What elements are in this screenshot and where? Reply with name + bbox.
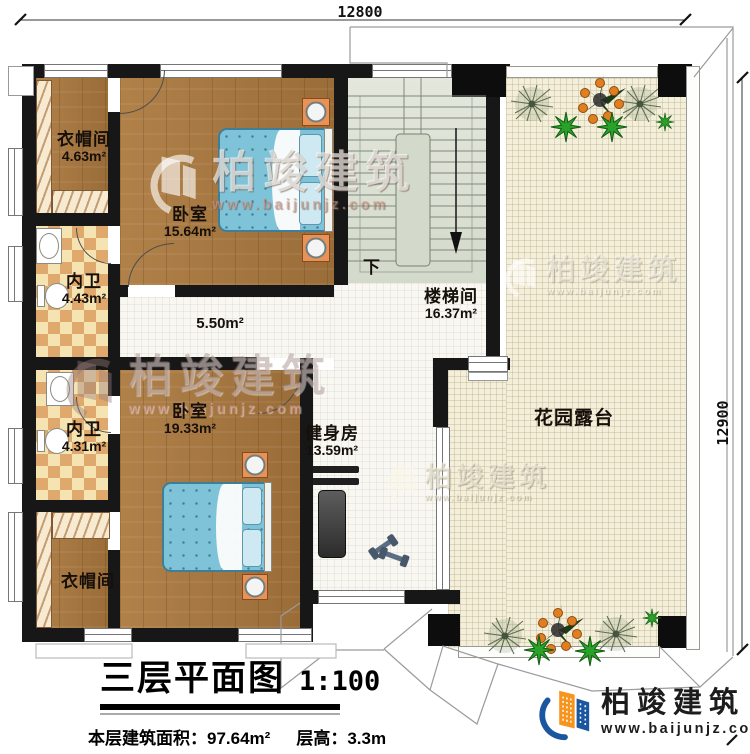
floor-height-label: 层高： (296, 729, 347, 748)
room-label-gym: 健身房 13.59m² (305, 424, 359, 459)
wardrobe-cloakroom-top-side (36, 80, 52, 214)
terrace-parapet-right (686, 66, 700, 650)
wall (300, 358, 313, 628)
window (8, 512, 23, 602)
wall (334, 64, 348, 285)
bed-headboard-bottom (264, 482, 272, 572)
lamp-icon (306, 238, 327, 259)
terrace-parapet-bottom (458, 646, 660, 658)
bed-sheet-top (272, 130, 300, 230)
toilet-tank (37, 430, 45, 452)
room-label-cloakroom-top: 衣帽间 4.63m² (57, 130, 111, 165)
pillow (242, 529, 262, 567)
room-label-bedroom-bottom: 卧室 19.33m² (164, 402, 216, 437)
plan-info: 本层建筑面积：97.64m² 层高：3.3m (88, 724, 386, 749)
wardrobe-cloakroom-bottom-shelf (52, 512, 110, 539)
wall (433, 370, 448, 427)
room-label-bathroom-top: 内卫 4.43m² (62, 272, 106, 307)
room-name: 卧室 (172, 402, 208, 421)
room-area: 19.33m² (164, 421, 216, 437)
weight-bench-seat (318, 490, 346, 558)
pillow (299, 182, 322, 225)
toilet-tank (37, 285, 45, 307)
company-logo-url: www.baijunjz.com (601, 721, 750, 737)
room-area: 15.64m² (164, 224, 216, 240)
window (8, 428, 23, 484)
floor-height-value: 3.3m (347, 729, 386, 748)
title-underline (100, 704, 340, 710)
stair-direction: 下 (363, 258, 381, 277)
room-area: 4.43m² (62, 291, 106, 307)
company-logo: 柏竣建筑 www.baijunjz.com (536, 684, 750, 742)
floor-terrace-lower (448, 370, 506, 648)
column (428, 614, 460, 646)
window (372, 64, 452, 78)
plan-title: 三层平面图 (100, 650, 285, 701)
room-name: 衣帽间 (57, 130, 111, 149)
room-area: 13.59m² (306, 443, 358, 459)
nightstand (242, 574, 268, 600)
bed-sheet-bottom (216, 484, 242, 570)
room-label-garden-terrace: 花园露台 (534, 408, 614, 429)
wall (22, 64, 36, 642)
wall (108, 434, 120, 500)
window (8, 148, 23, 216)
room-label-bathroom-bottom: 内卫 4.31m² (62, 420, 106, 455)
room-label-hallway: 5.50m² (196, 316, 244, 333)
nightstand (242, 452, 268, 478)
terrace-door-opening (468, 356, 508, 372)
floor-area-value: 97.64m² (207, 729, 270, 748)
window (160, 64, 282, 78)
room-name: 内卫 (66, 420, 102, 439)
wall (108, 264, 120, 357)
room-label-cloakroom-bottom: 衣帽间 (61, 572, 115, 591)
wall (120, 285, 128, 297)
room-area: 4.31m² (62, 439, 106, 455)
wall (22, 500, 120, 512)
floor-height: 层高：3.3m (296, 724, 386, 749)
wall (486, 64, 500, 358)
title-block: 三层平面图 1:100 本层建筑面积：97.64m² 层高：3.3m (100, 650, 386, 749)
wall (22, 213, 120, 226)
company-logo-brand: 柏竣建筑 (601, 689, 750, 718)
wall (22, 357, 257, 370)
bed-headboard-top (324, 128, 333, 232)
room-name: 花园露台 (534, 408, 614, 429)
lamp-icon (306, 102, 327, 123)
room-name: 健身房 (305, 424, 359, 443)
room-name: 内卫 (66, 272, 102, 291)
column (452, 64, 506, 97)
plan-scale: 1:100 (299, 666, 380, 697)
floor-area: 本层建筑面积：97.64m² (88, 724, 270, 749)
window (238, 628, 312, 642)
window-sill (8, 66, 34, 96)
nightstand (302, 98, 330, 126)
pillow (242, 487, 262, 525)
window (84, 628, 132, 642)
wall (108, 370, 120, 396)
floor-area-label: 本层建筑面积： (88, 729, 207, 748)
window-wall-to-terrace (436, 427, 450, 590)
lamp-icon (245, 455, 266, 476)
company-logo-icon (536, 684, 594, 742)
room-name: 楼梯间 (424, 287, 478, 306)
window (44, 64, 108, 78)
dimension-top-label: 12800 (330, 3, 390, 21)
terrace-parapet-top (506, 66, 658, 78)
sink-basin (50, 376, 70, 402)
room-area: 16.37m² (425, 306, 477, 322)
pillow (299, 134, 322, 177)
title-underline-thin (100, 713, 340, 715)
dimension-right-label: 12900 (714, 392, 732, 454)
room-area: 5.50m² (196, 316, 244, 333)
room-area: 4.63m² (62, 149, 106, 165)
floor-stairwell (348, 78, 486, 283)
floor-plan-canvas: 柏竣建筑 www.baijunjz.com 柏竣建筑 www.baijunjz.… (0, 0, 750, 754)
stair-direction-label: 下 (363, 258, 381, 277)
room-label-bedroom-top: 卧室 15.64m² (164, 205, 216, 240)
window (318, 590, 405, 604)
terrace-door-step (468, 372, 508, 381)
wardrobe-cloakroom-bottom-side (36, 510, 52, 628)
room-label-stairwell: 楼梯间 16.37m² (424, 287, 478, 322)
sink-basin (39, 233, 59, 259)
room-name: 卧室 (172, 205, 208, 224)
wall (175, 285, 334, 297)
window (8, 246, 23, 302)
floor-terrace-main (506, 78, 686, 648)
room-name: 衣帽间 (61, 572, 115, 591)
wall (108, 64, 120, 72)
lamp-icon (245, 577, 266, 598)
nightstand (302, 234, 330, 262)
